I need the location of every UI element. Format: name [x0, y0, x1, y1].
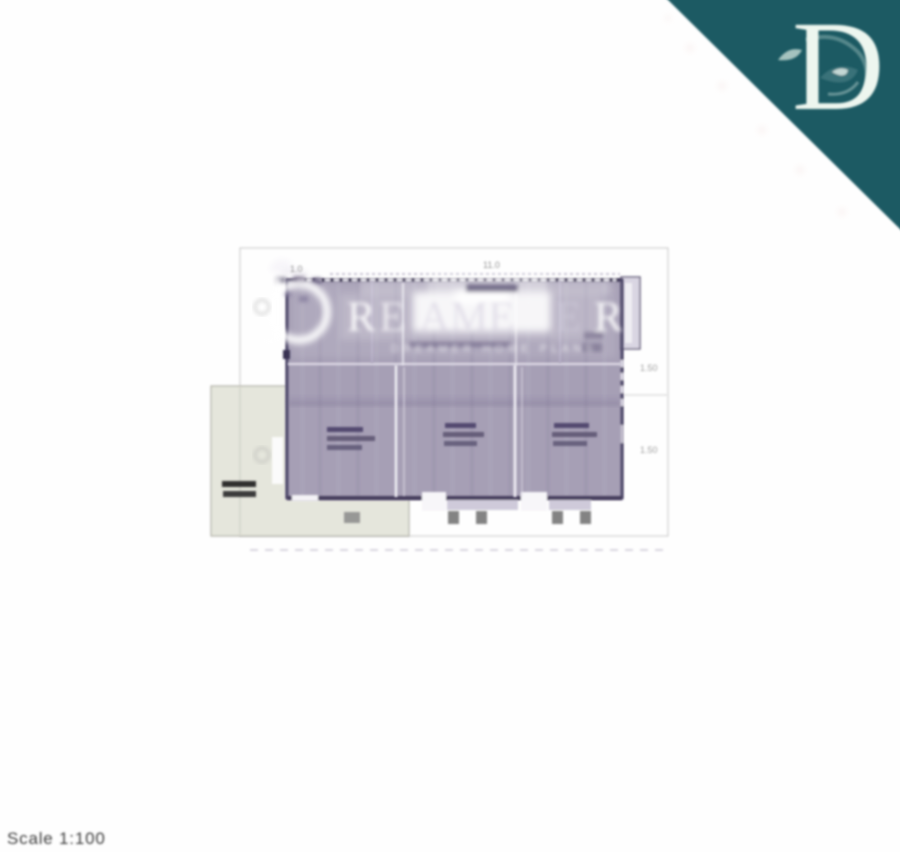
- svg-text:R: R: [347, 294, 376, 341]
- svg-text:1.0: 1.0: [290, 264, 303, 274]
- svg-text:E: E: [555, 294, 581, 341]
- svg-text:DREAMER HOME PLANS: DREAMER HOME PLANS: [391, 343, 597, 355]
- svg-text:1.50: 1.50: [640, 363, 658, 373]
- svg-text:AME: AME: [419, 294, 515, 341]
- svg-text:D: D: [792, 0, 884, 137]
- svg-text:E: E: [379, 294, 405, 341]
- svg-text:11.0: 11.0: [483, 260, 500, 270]
- svg-text:Scale 1:100: Scale 1:100: [7, 829, 106, 848]
- svg-text:1.50: 1.50: [640, 445, 658, 455]
